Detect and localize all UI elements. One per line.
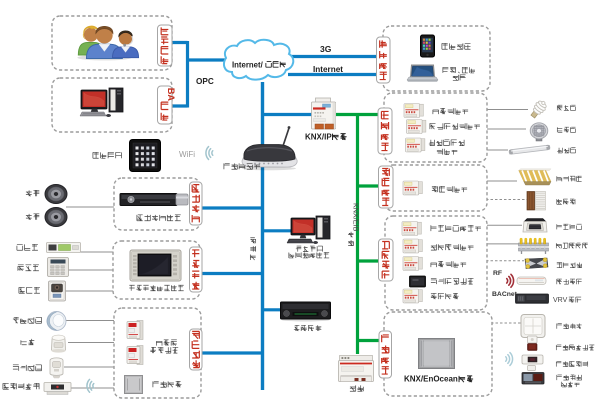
- svg-text:RF: RF: [493, 270, 502, 277]
- svg-text:VRV: VRV: [553, 297, 568, 304]
- svg-text:KNX/EnOcean: KNX/EnOcean: [404, 375, 458, 384]
- svg-text:BA: BA: [166, 88, 176, 102]
- svg-text:3G: 3G: [320, 44, 332, 54]
- svg-text:Internet: Internet: [313, 65, 343, 74]
- svg-text:OPC: OPC: [196, 77, 214, 86]
- svg-text:Internet/: Internet/: [232, 60, 264, 69]
- svg-text:KNX/EIB: KNX/EIB: [352, 203, 361, 232]
- svg-text:BACnet: BACnet: [492, 291, 518, 298]
- svg-text:WiFi: WiFi: [179, 150, 195, 159]
- svg-text:KNX/IP: KNX/IP: [305, 132, 332, 141]
